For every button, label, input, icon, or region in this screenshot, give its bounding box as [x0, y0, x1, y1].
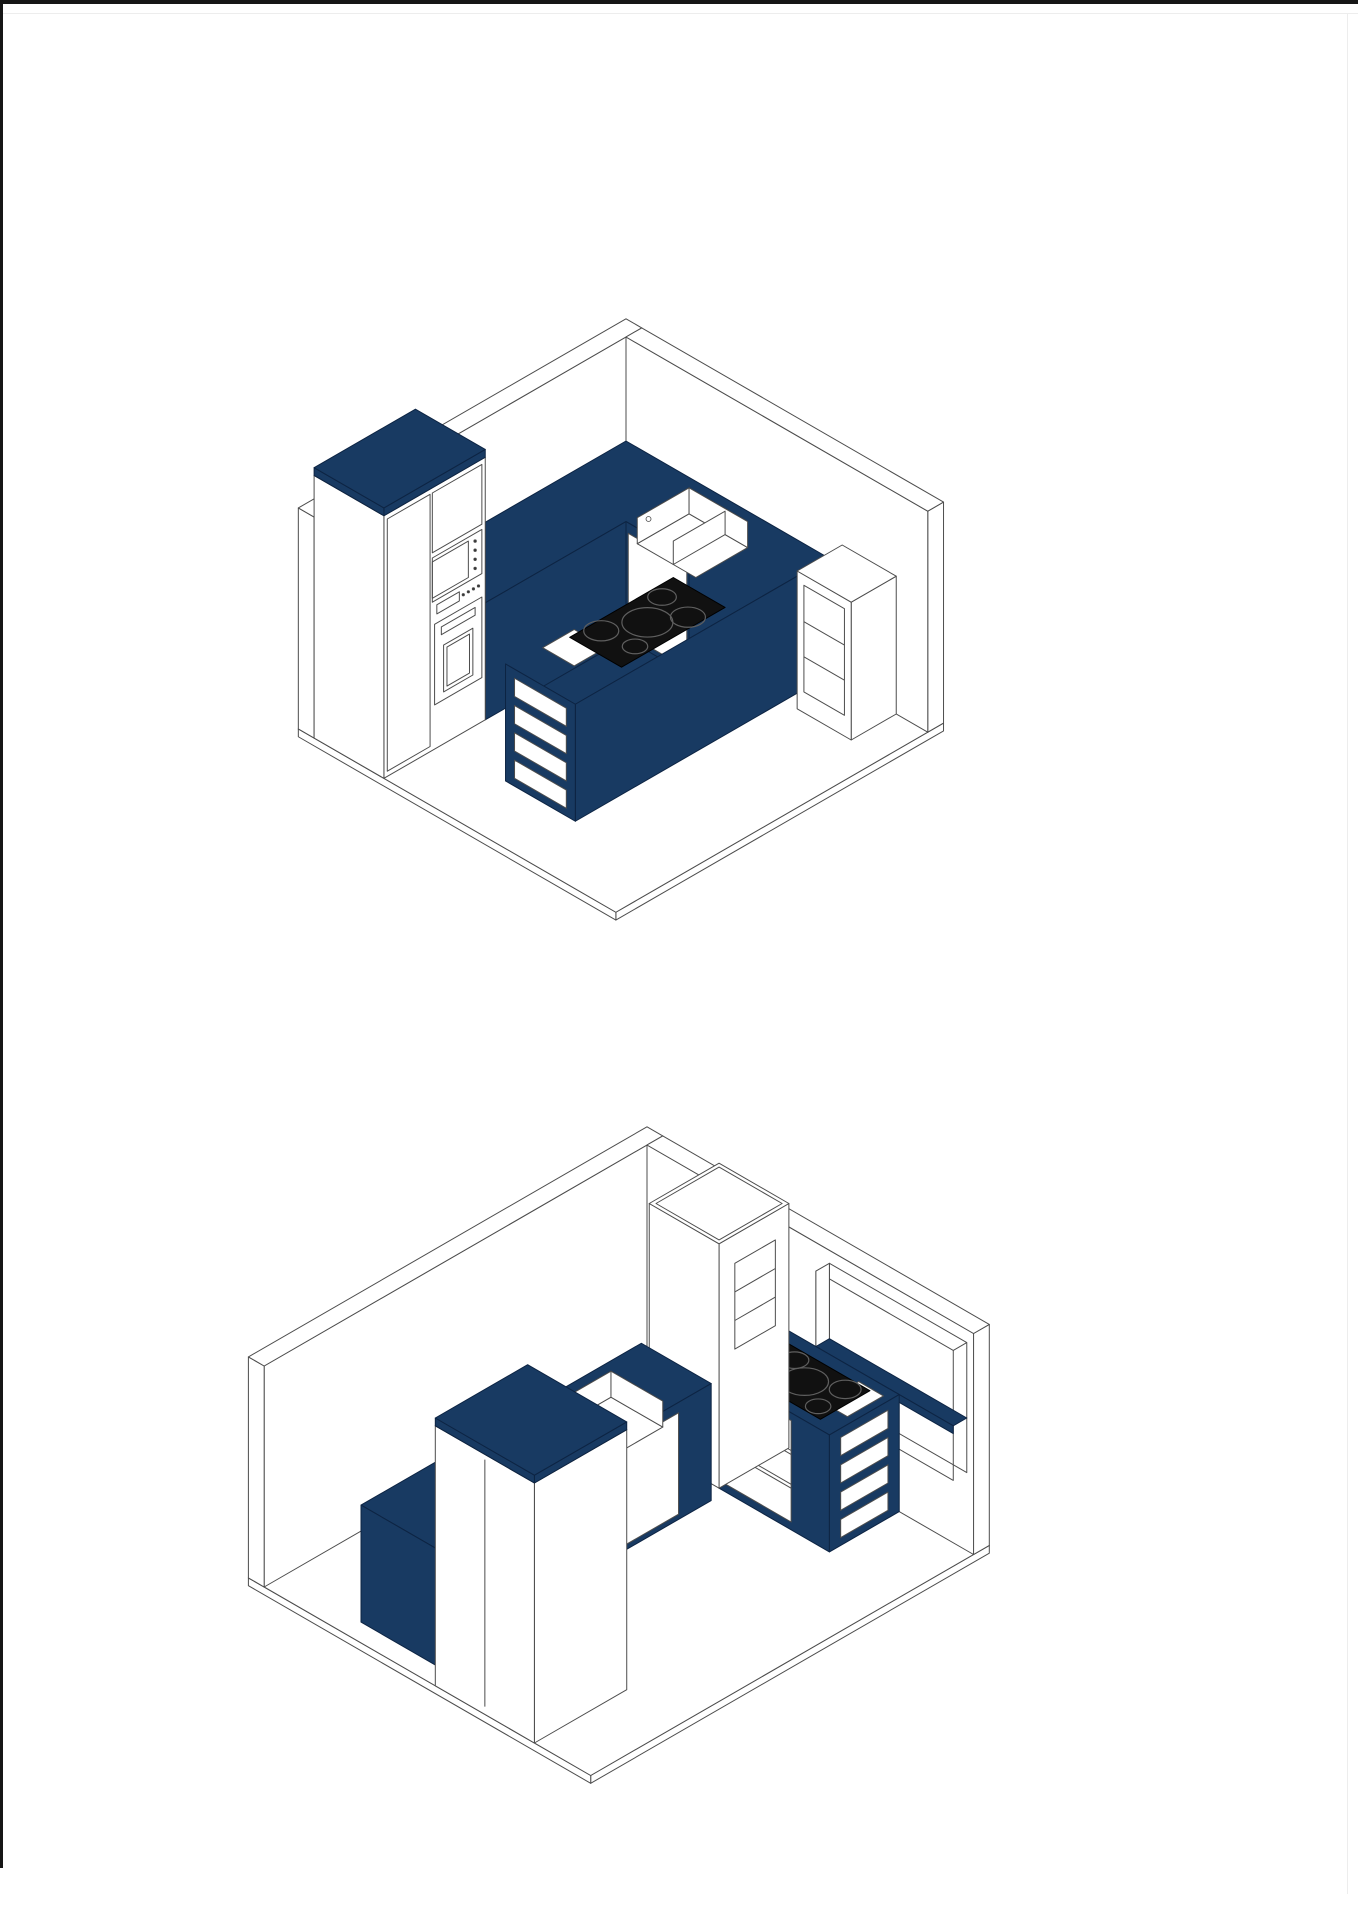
shelf-unit-recess: [804, 585, 845, 715]
shelf-unit-right-face: [851, 576, 896, 740]
kitchen-diagram-bottom: [248, 1127, 989, 1784]
sink-tap: [646, 517, 651, 522]
microwave-button: [474, 567, 477, 570]
microwave-button: [474, 558, 477, 561]
control-knob: [472, 588, 474, 590]
left-wall-front-face: [298, 508, 314, 738]
right-wall-right-face: [928, 502, 944, 732]
control-knob: [477, 585, 479, 587]
tall-cabinet-body-front-face: [314, 475, 384, 778]
left-wall-front-face: [248, 1357, 264, 1587]
control-knob: [467, 591, 469, 593]
right-wall-right-face: [974, 1324, 990, 1554]
document-page: [0, 0, 1358, 1920]
microwave-button: [474, 540, 477, 543]
kitchen-diagram-top: [298, 319, 943, 920]
tall-two-door-cabinet-right-face: [534, 1430, 626, 1743]
fridge-tower-right-face: [719, 1204, 789, 1489]
diagrams-canvas: [0, 0, 1358, 1920]
control-knob: [462, 594, 464, 596]
microwave-button: [474, 549, 477, 552]
